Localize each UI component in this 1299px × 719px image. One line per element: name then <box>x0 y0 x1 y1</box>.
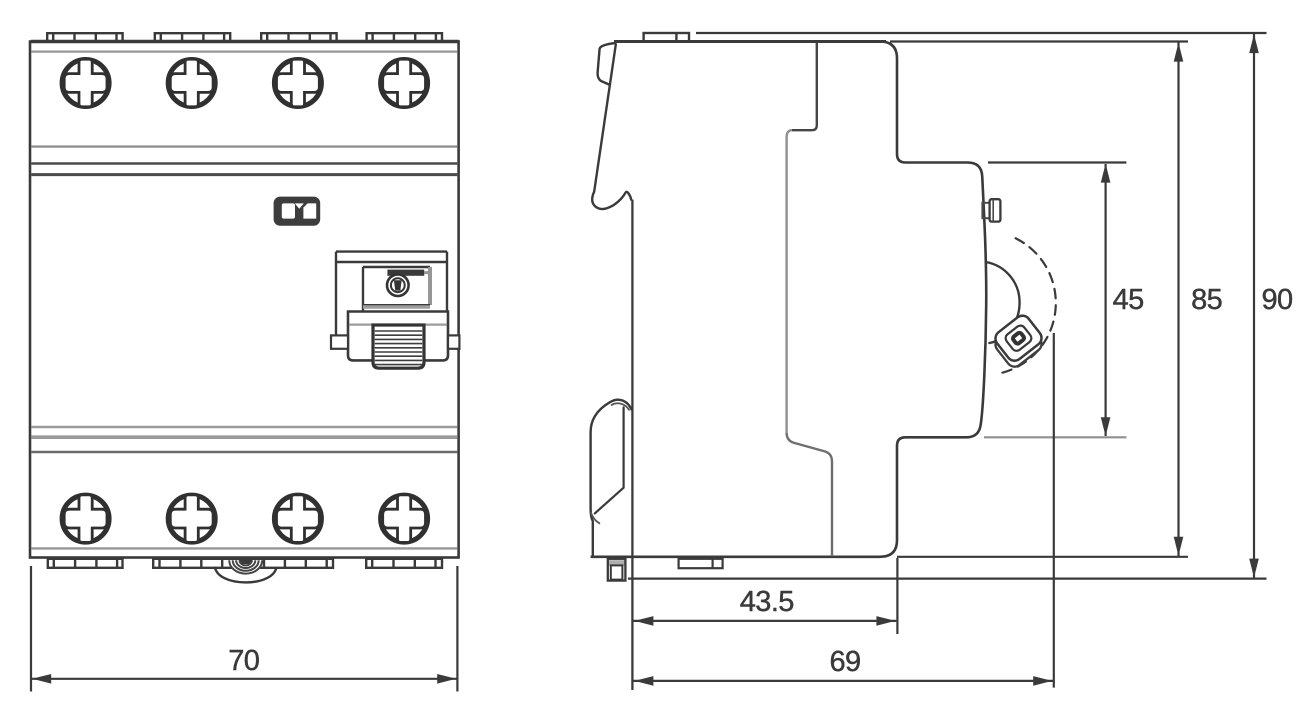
svg-text:70: 70 <box>228 645 259 677</box>
svg-text:69: 69 <box>829 646 860 678</box>
svg-text:85: 85 <box>1191 284 1222 316</box>
svg-text:45: 45 <box>1113 284 1144 316</box>
svg-text:43.5: 43.5 <box>740 586 794 618</box>
svg-text:90: 90 <box>1261 284 1292 316</box>
